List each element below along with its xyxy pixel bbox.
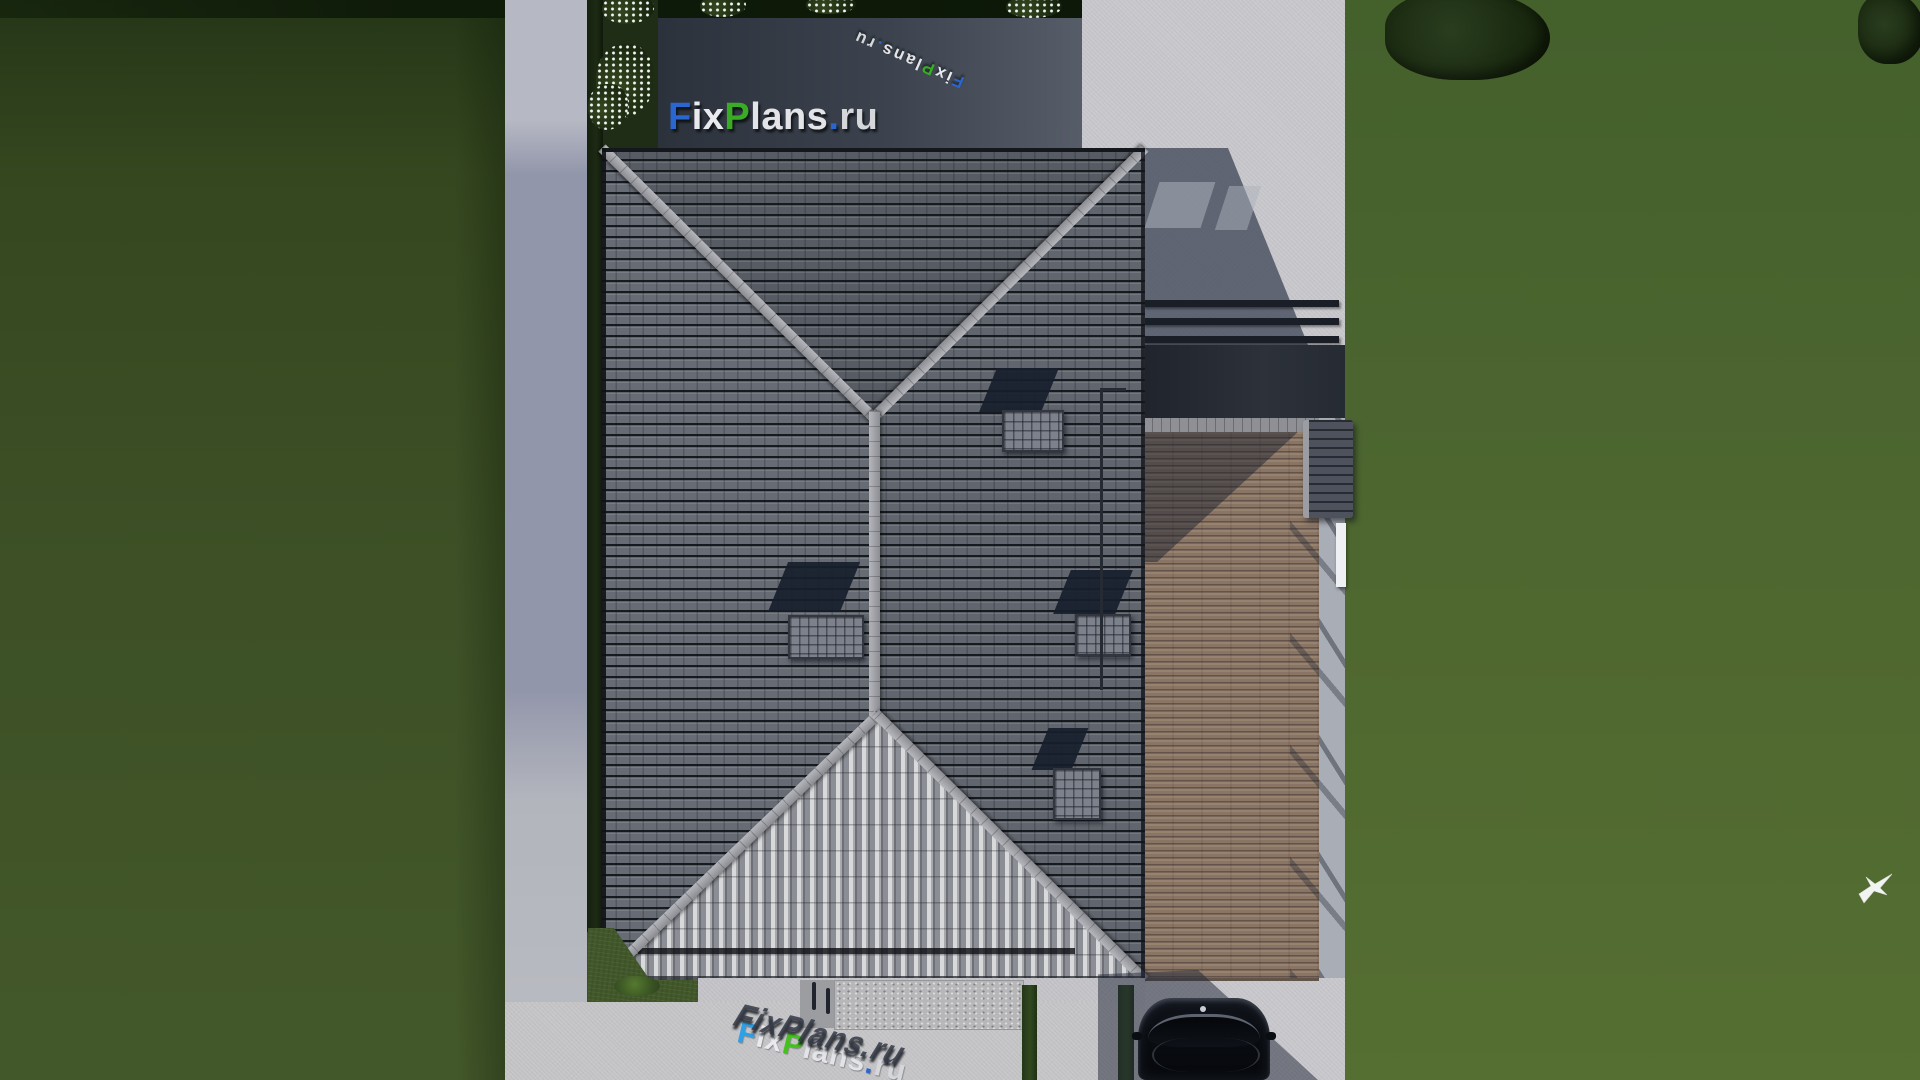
bollard <box>812 982 816 1010</box>
eave-edge-right <box>1141 148 1145 980</box>
sidewalk-left <box>505 0 587 1003</box>
car-antenna-dot <box>1200 1006 1206 1012</box>
brand-logo-part: ix <box>692 96 725 138</box>
roof-pipe <box>1100 390 1103 690</box>
roof-pipe-elbow <box>1100 388 1126 391</box>
notch-bush <box>614 976 660 996</box>
car-mirror-left <box>1132 1032 1142 1040</box>
brand-logo-part: lans <box>750 96 828 138</box>
skylight-window <box>1002 410 1064 452</box>
skylight-window <box>1053 768 1101 820</box>
brand-logo-part: ru <box>839 96 878 138</box>
railing-shadow-stripes <box>1290 440 1345 978</box>
car-hood-crease <box>1152 1038 1260 1072</box>
pergola-beam <box>1143 318 1339 325</box>
brand-logo-part: . <box>828 96 839 138</box>
lawn-right <box>1345 0 1920 1080</box>
parked-car <box>1138 998 1270 1080</box>
eave-edge-top <box>602 148 1145 152</box>
brand-logo-part: F <box>668 96 692 138</box>
entry-awning <box>1303 420 1353 518</box>
stone-patio-side <box>1143 345 1345 429</box>
bird-icon <box>1856 872 1896 908</box>
lawn-left-shade <box>455 0 505 1080</box>
stamped-stone-path <box>834 980 1024 1030</box>
hedge-line-roof-edge <box>587 0 603 932</box>
brand-logo: FixPlans.ru <box>668 96 878 139</box>
pergola-beam <box>1143 336 1339 343</box>
tree-foliage <box>1385 0 1550 80</box>
pergola-beam <box>1143 300 1339 307</box>
tree-foliage <box>1858 0 1920 64</box>
skylight-window <box>788 615 864 659</box>
hedge-bush-strip <box>1022 985 1037 1080</box>
brand-logo-part: P <box>724 96 750 138</box>
skylight-window <box>1075 614 1131 656</box>
roof-gutter-line <box>638 948 1075 954</box>
railing-post-sunlit <box>1336 523 1346 587</box>
bollard <box>826 988 830 1014</box>
aerial-render: FixPlans.ru FixPlans.ru FixPlans.ru FixP… <box>0 0 1920 1080</box>
deck-step-strip <box>1143 418 1319 432</box>
lawn-left <box>0 0 505 1080</box>
eave-edge-left <box>602 148 606 980</box>
ridge-cap-main <box>869 411 880 721</box>
hipped-roof <box>602 148 1145 980</box>
car-mirror-right <box>1266 1032 1276 1040</box>
